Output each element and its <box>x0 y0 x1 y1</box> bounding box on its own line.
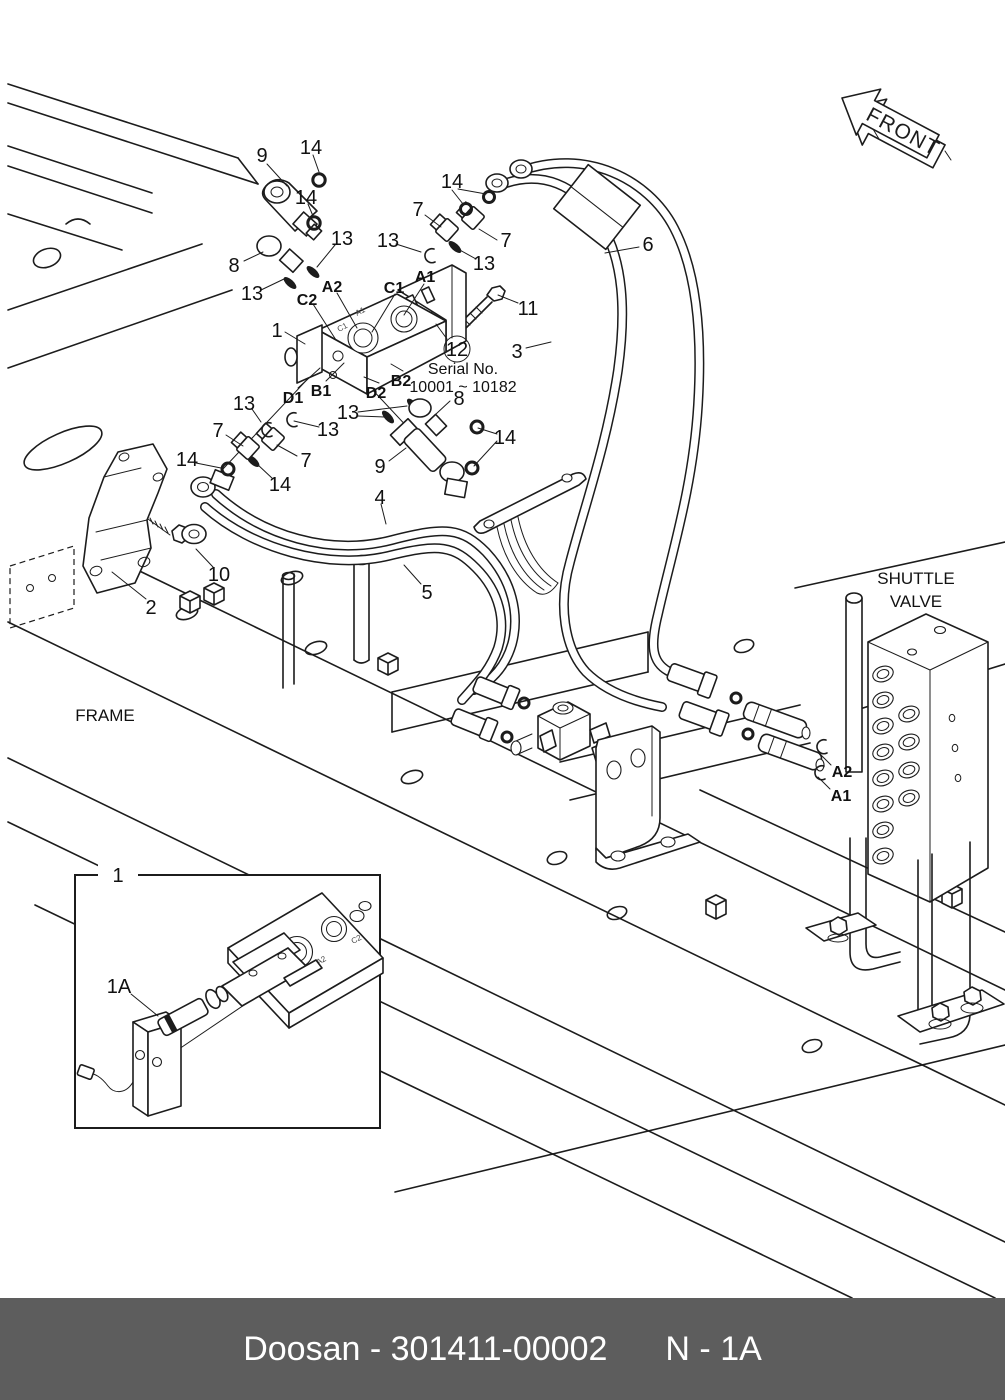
port-a1: A1 <box>415 269 436 286</box>
callout-13: 13 <box>473 253 495 275</box>
washer-14-a <box>313 174 325 186</box>
callout-13: 13 <box>317 419 339 441</box>
hose-3 <box>498 179 662 707</box>
bolt-washer-10 <box>148 518 206 544</box>
callout-14: 14 <box>441 171 463 193</box>
port-c1: C1 <box>384 280 405 297</box>
l-bracket <box>596 726 700 869</box>
callout-14: 14 <box>300 137 322 159</box>
annotations: 12 Serial No. 10001 ~ 10182 FRAME SHUTTL… <box>75 336 954 725</box>
callout-13: 13 <box>331 228 353 250</box>
callout-1a-inset: 1A <box>107 976 132 998</box>
serial-no-title: Serial No. <box>428 361 498 378</box>
parts-catalog-page: A1 C1 A2 <box>0 0 1005 1400</box>
callout-9: 9 <box>256 145 267 167</box>
port-d1: D1 <box>283 390 304 407</box>
hose-4 <box>216 494 515 690</box>
washer-14-d <box>222 463 234 475</box>
callout-8: 8 <box>228 255 239 277</box>
footer-doc-id: Doosan - 301411-00002 <box>243 1330 607 1369</box>
callout-14: 14 <box>176 449 198 471</box>
o-ring-13 <box>305 264 322 280</box>
callout-6: 6 <box>642 234 653 256</box>
shuttle-valve-label-line1: SHUTTLE <box>877 569 954 588</box>
fitting-plug-8-top <box>257 236 303 272</box>
callout-14: 14 <box>494 427 516 449</box>
callout-5: 5 <box>421 582 432 604</box>
callout-1-inset: 1 <box>112 865 123 887</box>
shuttle-valve <box>806 593 1004 1044</box>
mounting-bracket <box>83 444 167 593</box>
shuttle-valve-label-line2: VALVE <box>890 592 942 611</box>
o-ring-13 <box>282 275 299 291</box>
callout-13: 13 <box>377 230 399 252</box>
parts-diagram: A1 C1 A2 <box>0 0 1005 1298</box>
port-c2: C2 <box>297 292 318 309</box>
port-d2: D2 <box>366 385 387 402</box>
callout-14: 14 <box>295 187 317 209</box>
port-b2: B2 <box>391 373 412 390</box>
callout-7: 7 <box>500 230 511 252</box>
washer-14-f1 <box>471 421 483 433</box>
callout-9: 9 <box>374 456 385 478</box>
callout-12: 12 <box>446 339 468 361</box>
serial-no-range: 10001 ~ 10182 <box>409 379 516 396</box>
o-ring-13 <box>447 239 464 255</box>
port-a2: A2 <box>322 279 343 296</box>
hose-end-fittings-left <box>449 673 529 742</box>
callout-7: 7 <box>300 450 311 472</box>
clip-13 <box>425 249 435 263</box>
callout-2: 2 <box>145 597 156 619</box>
footer-page-ref: N - 1A <box>665 1330 761 1369</box>
fitting-train-mid <box>380 397 483 498</box>
callout-13: 13 <box>233 393 255 415</box>
callout-11: 11 <box>518 298 539 320</box>
callout-3: 3 <box>511 341 522 363</box>
callout-10: 10 <box>208 564 230 586</box>
callout-7: 7 <box>412 199 423 221</box>
frame-label: FRAME <box>75 706 135 725</box>
shuttle-port-a2: A2 <box>832 764 853 781</box>
port-b1: B1 <box>311 383 332 400</box>
callout-7: 7 <box>212 420 223 442</box>
callout-4: 4 <box>374 487 385 509</box>
hose-end-fittings-right <box>665 660 827 780</box>
callout-13: 13 <box>337 402 359 424</box>
shuttle-port-a1: A1 <box>831 788 852 805</box>
front-direction-arrow: FRONT <box>830 75 951 179</box>
callout-13: 13 <box>241 283 263 305</box>
washer-14-c2 <box>484 192 495 203</box>
callout-1: 1 <box>271 320 282 342</box>
footer-bar: Doosan - 301411-00002 N - 1A <box>0 1298 1005 1400</box>
callout-14: 14 <box>269 474 291 496</box>
fitting-nuts-7-top <box>429 201 485 242</box>
